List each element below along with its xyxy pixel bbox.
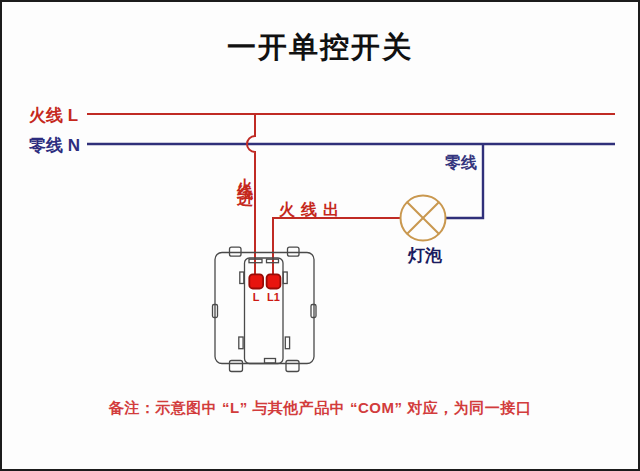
terminal-l1 [267, 274, 281, 288]
footnote: 备注：示意图中 “L” 与其他产品中 “COM” 对应，为同一接口 [2, 399, 638, 418]
switch-bottom-notch [265, 359, 276, 364]
switch-top-tab [230, 247, 242, 256]
terminal-l1-label: L1 [267, 291, 280, 303]
live-wire-label: 火线 L [29, 104, 78, 127]
switch-bottom-tab [286, 361, 299, 372]
switch-inner-clip [283, 272, 287, 284]
live-in-wire [247, 114, 255, 280]
bulb-label: 灯泡 [408, 244, 442, 267]
switch-outer-frame [215, 253, 314, 364]
terminal-l [249, 274, 263, 288]
switch-bottom-tab [230, 361, 243, 372]
bulb-icon [401, 196, 446, 241]
switch-top-tab [288, 247, 300, 256]
terminal-l-label: L [253, 291, 260, 303]
switch-inner-clip [285, 337, 289, 349]
neutral-branch-label: 零线 [445, 153, 477, 174]
live-out-label: 火线出 [279, 200, 345, 221]
neutral-wire-label: 零线 N [29, 134, 80, 157]
switch-inner-clip [239, 337, 243, 349]
switch-inner-clip [240, 272, 244, 284]
live-out-wire [273, 218, 401, 280]
live-in-label: 火线进 [234, 165, 255, 183]
wiring-diagram: 一开单控开关 [0, 0, 640, 471]
switch-device: L L1 [213, 247, 317, 371]
